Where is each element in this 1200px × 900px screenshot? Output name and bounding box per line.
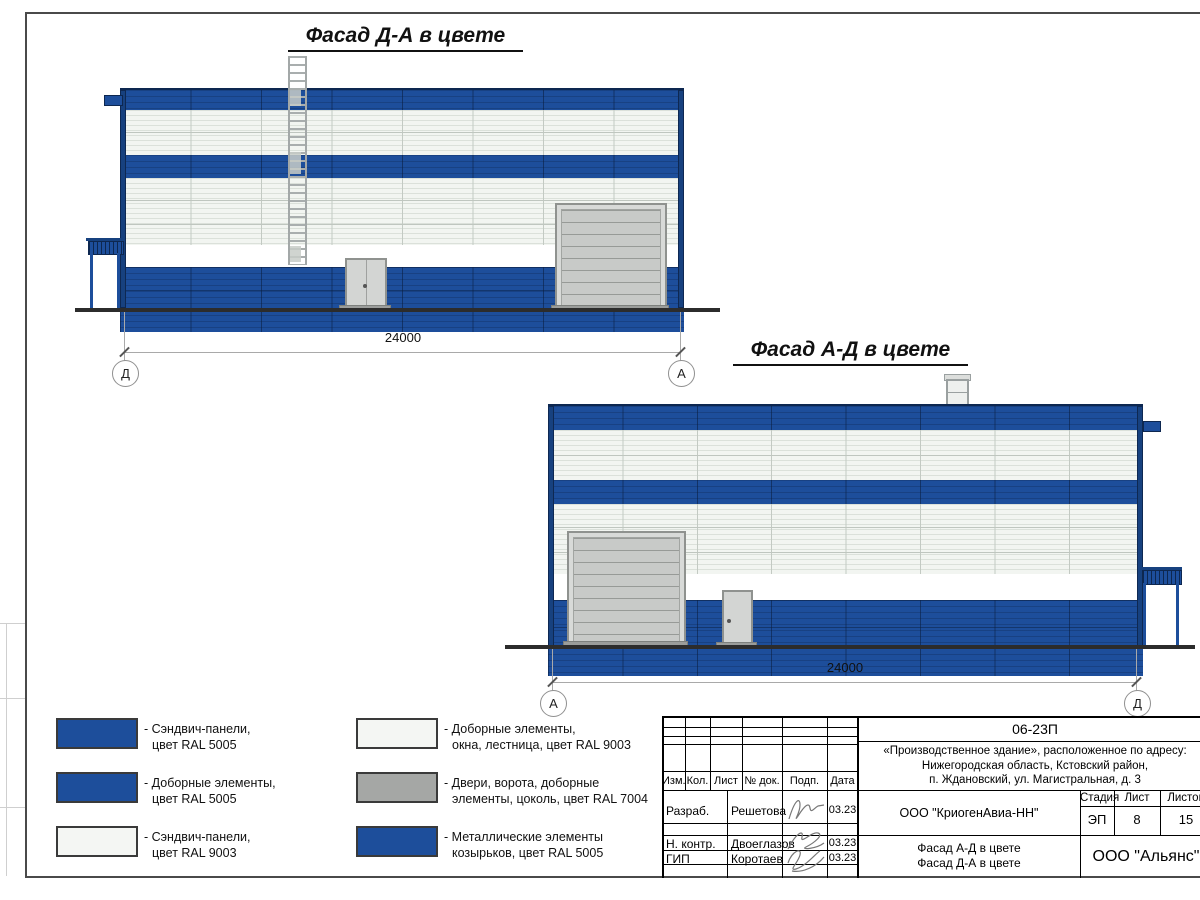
legend-swatch-sandwich-9003 (56, 826, 138, 857)
facade1-dimension-value: 24000 (353, 330, 453, 345)
tb-doc-number: 06-23П (858, 721, 1200, 737)
margin-line (6, 623, 7, 876)
tb-address-line: «Производственное здание», расположенное… (858, 744, 1200, 759)
facade2-door (722, 590, 753, 649)
facade1-axis-bubble-left: Д (112, 360, 139, 387)
facade1-gate (555, 203, 667, 312)
tb-col-data: Дата (827, 775, 858, 787)
tb-date-razrab: 03.23 (827, 804, 858, 816)
legend-label: цвет RAL 5005 (144, 791, 276, 807)
facade2-extension-line-left (552, 649, 553, 692)
facade2-dimension-value: 24000 (795, 660, 895, 675)
tb-sheet-value: 8 (1114, 812, 1160, 827)
facade1-middle-band (120, 155, 684, 178)
tb-date-gip: 03.23 (827, 852, 858, 864)
legend-swatch-trim-9003 (356, 718, 438, 749)
facade1-ladder-segment (290, 246, 301, 262)
tb-org: ООО "Альянс" (1080, 848, 1200, 866)
legend-label: - Доборные элементы, (144, 775, 276, 791)
facade1-title: Фасад Д-А в цвете (288, 24, 523, 52)
facade1-roof-tab (104, 95, 123, 106)
legend-label: - Сэндвич-панели, (144, 721, 250, 737)
facade1-extension-line-left (124, 312, 125, 362)
tb-col-list: Лист (710, 775, 742, 787)
tb-sheets-value: 15 (1160, 812, 1200, 827)
margin-line (0, 807, 25, 808)
legend-item: - Металлические элементы козырьков, цвет… (444, 829, 603, 861)
tb-sheet-title: Фасад А-Д в цвете Фасад Д-А в цвете (858, 841, 1080, 871)
legend-label: - Металлические элементы (444, 829, 603, 845)
facade2-canopy-post (1176, 583, 1179, 645)
legend-item: - Доборные элементы, цвет RAL 5005 (144, 775, 276, 807)
facade1-extension-line-right (680, 312, 681, 362)
legend-label: цвет RAL 9003 (144, 845, 250, 861)
signature (782, 843, 828, 875)
margin-line (0, 698, 25, 699)
signature (784, 827, 828, 853)
facade1-corner-trim-right (678, 90, 684, 308)
tb-role-nkontr: Н. контр. (666, 837, 716, 851)
facade2-dimension-line (552, 682, 1137, 683)
legend-label: - Двери, ворота, доборные (444, 775, 648, 791)
legend-swatch-sandwich-5005 (56, 718, 138, 749)
facade2-title: Фасад А-Д в цвете (733, 338, 968, 366)
facade2-corner-trim-left (548, 406, 554, 648)
facade2-canopy-post (1143, 583, 1146, 645)
tb-col-podp: Подп. (782, 775, 827, 787)
legend-item: - Двери, ворота, доборные элементы, цоко… (444, 775, 648, 807)
tb-sheet-title-line: Фасад А-Д в цвете (858, 841, 1080, 856)
tb-address-line: п. Ждановский, ул. Магистральная, д. 3 (858, 773, 1200, 788)
facade2-axis-bubble-left: А (540, 690, 567, 717)
tb-col-kol: Кол. (685, 775, 710, 787)
facade2-door-handle (727, 619, 731, 623)
legend-label: козырьков, цвет RAL 5005 (444, 845, 603, 861)
legend-label: - Доборные элементы, (444, 721, 631, 737)
margin-line (0, 623, 25, 624)
tb-role-razrab: Разраб. (666, 804, 709, 818)
facade1-ladder-segment (290, 90, 301, 106)
facade1-ladder-segment (290, 152, 301, 174)
tb-date-nkontr: 03.23 (827, 837, 858, 849)
tb-address: «Производственное здание», расположенное… (858, 744, 1200, 788)
facade1-parapet-band (120, 90, 684, 110)
legend-label: элементы, цоколь, цвет RAL 7004 (444, 791, 648, 807)
facade1-corner-trim-left (120, 90, 126, 308)
legend-label: цвет RAL 5005 (144, 737, 250, 753)
facade1-canopy-post (117, 253, 120, 308)
facade2-axis-bubble-right: Д (1124, 690, 1151, 717)
facade1-canopy-post (90, 253, 93, 308)
signature (784, 793, 826, 825)
tb-role-gip: ГИП (666, 852, 690, 866)
legend-swatch-trim-5005 (56, 772, 138, 803)
facade1-axis-bubble-right: А (668, 360, 695, 387)
drawing-sheet: Фасад Д-А в цвете (0, 0, 1200, 900)
tb-sheet-label: Лист (1114, 792, 1160, 804)
frame-left (25, 12, 27, 878)
tb-stage-label: Стадия (1080, 792, 1114, 804)
tb-name-nkontr: Двоеглазов (731, 837, 795, 851)
tb-sheets-label: Листов (1160, 792, 1200, 804)
facade1-ground-line (75, 308, 720, 312)
legend-swatch-canopy-5005 (356, 826, 438, 857)
legend-label: - Сэндвич-панели, (144, 829, 250, 845)
facade2-gate (567, 531, 686, 649)
legend-item: - Сэндвич-панели, цвет RAL 9003 (144, 829, 250, 861)
legend-swatch-doors-7004 (356, 772, 438, 803)
tb-address-line: Нижегородская область, Кстовский район, (858, 759, 1200, 774)
frame-top (25, 12, 1200, 14)
facade1-door-handle (363, 284, 367, 288)
facade2-extension-line-right (1136, 649, 1137, 692)
facade1-gate-sections (561, 209, 661, 306)
facade2-middle-band (548, 480, 1143, 504)
tb-sheet-title-line: Фасад Д-А в цвете (858, 856, 1080, 871)
facade2-gate-sections (573, 537, 680, 643)
facade2-ground-line (505, 645, 1195, 649)
tb-stage-value: ЭП (1080, 812, 1114, 827)
frame-bottom (25, 876, 1200, 878)
tb-name-razrab: Решетова (731, 804, 786, 818)
legend-item: - Сэндвич-панели, цвет RAL 5005 (144, 721, 250, 753)
tb-col-izm: Изм. (662, 775, 685, 787)
facade1-window-band-upper (120, 110, 684, 155)
tb-name-gip: Коротаев (731, 852, 783, 866)
facade2-roof-tab (1143, 421, 1161, 432)
facade1-dimension-line (124, 352, 681, 353)
tb-col-doc: № док. (742, 775, 782, 787)
facade1-door (345, 258, 387, 312)
legend-label: окна, лестница, цвет RAL 9003 (444, 737, 631, 753)
facade2-window-band-upper (548, 430, 1143, 480)
legend-item: - Доборные элементы, окна, лестница, цве… (444, 721, 631, 753)
tb-company: ООО "КриогенАвиа-НН" (858, 806, 1080, 820)
facade2-parapet-band (548, 406, 1143, 430)
